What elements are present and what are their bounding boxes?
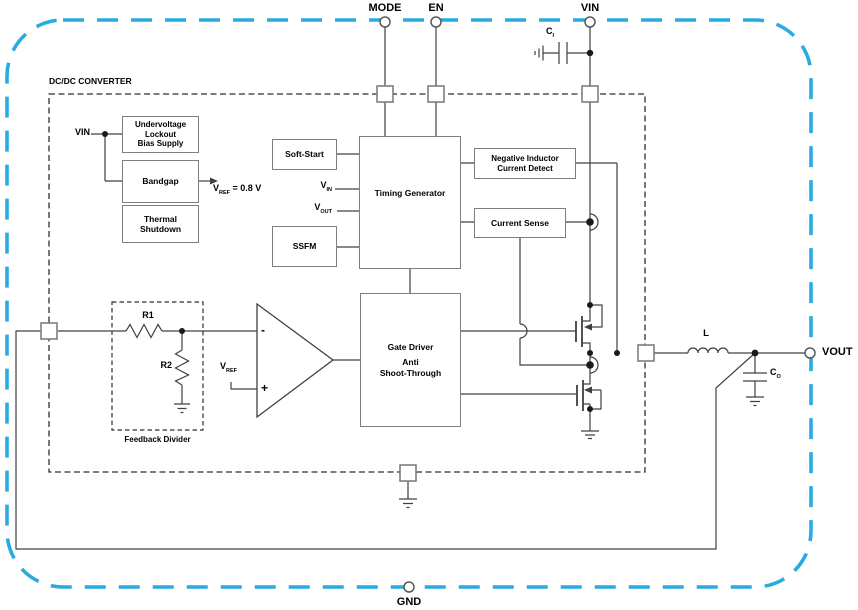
- en-boundary-pin: [428, 86, 444, 102]
- block-gate-driver: Gate Driver Anti Shoot-Through: [360, 293, 461, 427]
- mode-pin-circle: [380, 17, 390, 27]
- soft-start-label: Soft-Start: [285, 149, 324, 159]
- ssfm-label: SSFM: [293, 241, 317, 251]
- low-side-fet-arrow: [584, 387, 592, 394]
- label-r1: R1: [136, 310, 160, 320]
- label-feedback-divider: Feedback Divider: [108, 435, 207, 444]
- vout-pin-circle: [805, 348, 815, 358]
- en-pin-circle: [431, 17, 441, 27]
- neg-inductor-line1: Negative Inductor: [491, 154, 559, 163]
- pin-label-gnd: GND: [382, 596, 436, 608]
- vin-boundary-pin: [582, 86, 598, 102]
- label-v-in: VIN: [300, 180, 332, 190]
- high-side-fet-gate-channel: [576, 316, 582, 347]
- pin-label-en: EN: [421, 2, 451, 14]
- ground-boundary-pin: [400, 465, 416, 481]
- label-inductor: L: [694, 328, 718, 339]
- label-c-in: CI: [546, 26, 554, 36]
- converter-title: DC/DC CONVERTER: [49, 76, 132, 86]
- switch-boundary-pin: [638, 345, 654, 361]
- gnd-pin-circle: [404, 582, 414, 592]
- block-bandgap: Bandgap: [122, 160, 199, 203]
- label-vin-internal: VIN: [60, 127, 90, 137]
- mode-boundary-pin: [377, 86, 393, 102]
- high-side-fet-arrow: [584, 324, 592, 331]
- bandgap-label: Bandgap: [142, 176, 178, 186]
- gate-driver-line1: Gate Driver: [388, 342, 434, 352]
- block-soft-start: Soft-Start: [272, 139, 337, 170]
- block-ssfm: SSFM: [272, 226, 337, 267]
- label-v-ref: VREF: [220, 361, 237, 371]
- wire-internal-ground: [399, 481, 417, 508]
- thermal-line2: Shutdown: [140, 224, 181, 234]
- vref-sub: REF: [219, 190, 230, 196]
- thermal-line1: Thermal: [144, 214, 177, 224]
- wire-timing-generator-inputs: [335, 154, 359, 247]
- pin-label-vin: VIN: [572, 2, 608, 14]
- label-vref-value: VREF = 0.8 V: [213, 183, 261, 193]
- vin-pin-circle: [585, 17, 595, 27]
- gate-driver-line2: Anti: [402, 357, 419, 367]
- wire-input-capacitor: [535, 42, 587, 64]
- timing-generator-label: Timing Generator: [375, 188, 446, 198]
- block-undervoltage-lockout: Undervoltage Lockout Bias Supply: [122, 116, 199, 153]
- block-diagram-canvas: Undervoltage Lockout Bias Supply Bandgap…: [0, 0, 858, 610]
- low-side-fet-gate-channel: [577, 380, 583, 411]
- label-r2: R2: [148, 360, 172, 370]
- label-c-out: CO: [770, 367, 781, 377]
- comparator-plus-sign: +: [261, 383, 268, 393]
- label-v-out: VOUT: [294, 202, 332, 212]
- wire-gate-driver-outputs: [461, 331, 577, 394]
- neg-inductor-line2: Current Detect: [497, 164, 553, 173]
- uvlo-line3: Bias Supply: [138, 139, 184, 148]
- wire-output-stage: [654, 348, 805, 406]
- pin-label-mode: MODE: [358, 2, 412, 14]
- gate-driver-line3: Shoot-Through: [380, 368, 441, 378]
- error-comparator-symbol: [257, 304, 333, 417]
- block-thermal-shutdown: Thermal Shutdown: [122, 205, 199, 243]
- vref-rest: = 0.8 V: [230, 183, 261, 193]
- block-current-sense: Current Sense: [474, 208, 566, 238]
- pin-label-vout: VOUT: [822, 346, 853, 358]
- uvlo-line1: Undervoltage: [135, 120, 186, 129]
- feedback-boundary-pin: [41, 323, 57, 339]
- block-negative-inductor-current-detect: Negative Inductor Current Detect: [474, 148, 576, 179]
- wire-vin-internal-feed: [91, 134, 122, 181]
- current-sense-label: Current Sense: [491, 218, 549, 228]
- wire-negative-inductor-detect: [461, 163, 617, 353]
- comparator-minus-sign: -: [261, 325, 265, 335]
- block-timing-generator: Timing Generator: [359, 136, 461, 269]
- uvlo-line2: Lockout: [145, 130, 176, 139]
